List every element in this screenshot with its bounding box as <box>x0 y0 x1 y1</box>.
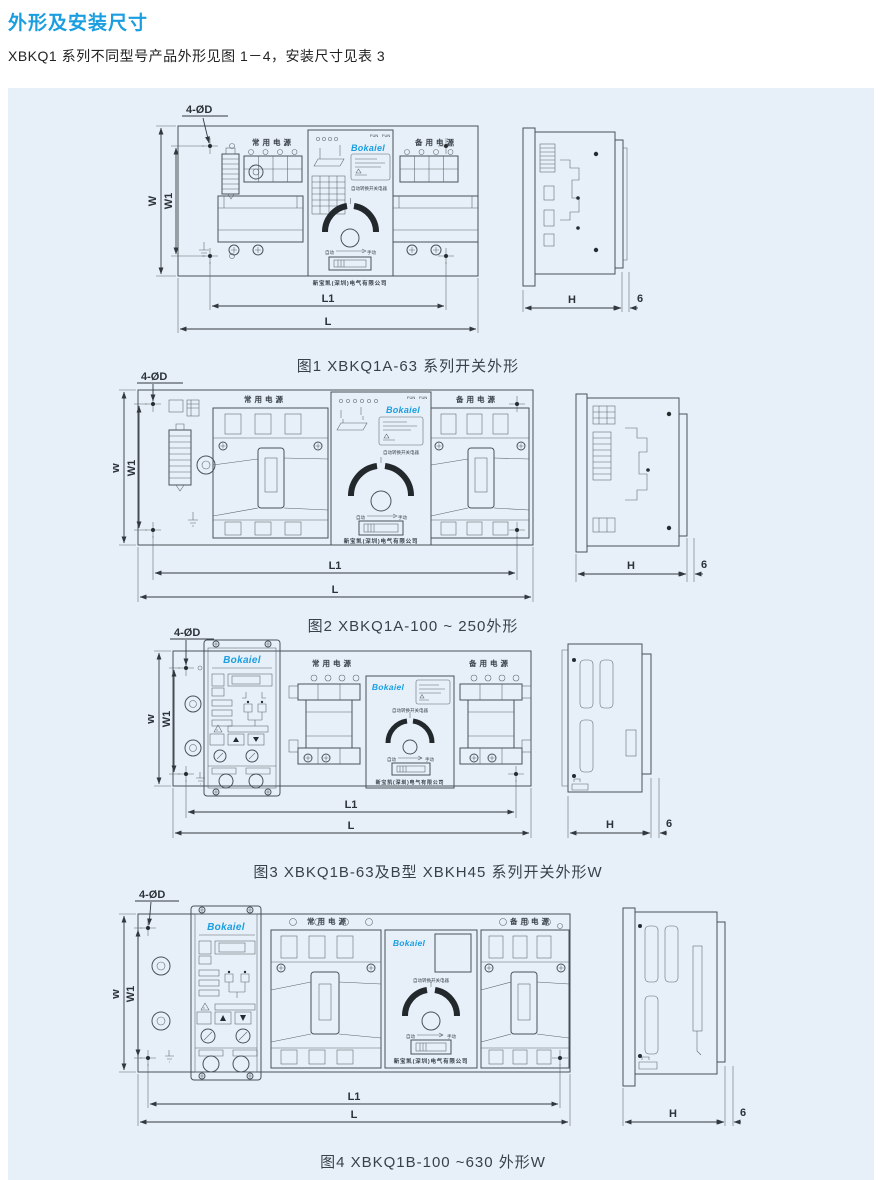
mounting-hole <box>140 920 156 936</box>
screw <box>247 907 253 913</box>
dim-h-label: H <box>568 294 576 306</box>
screw <box>199 907 205 913</box>
fig3-dimensions: W W1 L1 L <box>148 651 531 838</box>
fig4-dimensions: W W1 L1 L <box>113 914 570 1126</box>
terminal-screw <box>407 245 417 255</box>
dim-h-label: H <box>606 819 614 831</box>
left-contactor <box>289 684 360 764</box>
auto-label: 自动 <box>325 249 334 256</box>
ground-symbol <box>165 1050 174 1062</box>
company-label: 新宝凯(深圳)电气有限公司 <box>394 1057 469 1065</box>
fig2-dimensions: W W1 L1 L <box>113 390 533 602</box>
dim-h-label: H <box>669 1108 677 1120</box>
fig3-drawing: 常用电源 备用电源 <box>148 626 708 854</box>
auto-label: 自动 <box>356 514 365 521</box>
terminal-screw <box>219 442 227 450</box>
dim-w-label: W <box>148 713 157 724</box>
brand-logo: Bokaiel <box>372 682 405 692</box>
fig1-side-view: H 6 <box>523 128 643 312</box>
brand-logo: Bokaiel <box>386 405 420 415</box>
fig2-side-view: H 6 <box>576 394 707 582</box>
dim-l1-label: L1 <box>348 1091 361 1103</box>
dim-l-label: L <box>332 584 339 596</box>
terminal-screw <box>253 245 263 255</box>
mounting-hole <box>509 396 525 412</box>
manual-label: 手动 <box>367 249 376 256</box>
hole-dim-label: 4-ØD <box>186 104 212 116</box>
screw <box>265 789 271 795</box>
ground-symbol <box>188 512 198 526</box>
company-label: 新宝凯(深圳)电气有限公司 <box>313 279 388 287</box>
backup-power-label: 备用电源 <box>414 137 457 147</box>
figure-3-caption: 图3 XBKQ1B-63及B型 XBKH45 系列开关外形W <box>148 861 708 882</box>
mounting-hole <box>509 522 525 538</box>
normal-power-label: 常用电源 <box>252 137 294 147</box>
fig1-drawing: 常用电源 备用电源 FUN FUN Bokaiel <box>148 98 668 348</box>
terminal-screw <box>435 442 443 450</box>
fig1-dimensions: W W1 L1 L <box>148 126 478 333</box>
dim-l-label: L <box>351 1109 358 1121</box>
brand-logo: Bokaiel <box>393 938 426 948</box>
mounting-hole <box>438 248 454 264</box>
dim-w1-label: W1 <box>125 986 137 1003</box>
intro-text: XBKQ1 系列不同型号产品外形见图 1－4，安装尺寸见表 3 <box>8 46 385 66</box>
fig4-side-view: H 6 <box>623 908 746 1126</box>
dim-gap-label: 6 <box>637 293 643 305</box>
dim-w-label: W <box>113 988 122 999</box>
normal-power-label: 常用电源 <box>244 394 286 404</box>
fig2-control-panel: FUN FUN Bokaiel 自动转换开关电器 自动 手动 新宝凯(深圳)电气… <box>331 392 431 545</box>
manual-label: 手动 <box>398 514 407 521</box>
fig4-hole-callout: 4-ØD <box>135 889 179 925</box>
figure-3: 常用电源 备用电源 <box>148 626 708 882</box>
dim-w-label: W <box>148 195 159 206</box>
page-title: 外形及安装尺寸 <box>8 8 148 35</box>
warning-triangle <box>201 1003 209 1010</box>
fig4-front-view: 常用电源 备用电源 <box>138 914 570 1072</box>
fig4-drawing: 常用电源 备用电源 <box>113 886 753 1144</box>
manual-label: 手动 <box>447 1033 456 1040</box>
manual-label: 手动 <box>425 756 434 763</box>
auto-label: 自动 <box>387 756 396 763</box>
brand-logo: Bokaiel <box>223 655 261 666</box>
terminal-screw <box>322 754 330 762</box>
fig2-hole-callout: 4-ØD <box>137 371 183 401</box>
fig4-controller: Bokaiel <box>191 906 261 1080</box>
normal-power-label: 常用电源 <box>312 658 354 668</box>
screw <box>265 641 271 647</box>
fig3-hole-callout: 4-ØD <box>170 627 214 665</box>
fun-indicator-label: FUN <box>419 395 427 400</box>
company-label: 新宝凯(深圳)电气有限公司 <box>376 779 445 786</box>
dim-gap-label: 6 <box>740 1107 746 1119</box>
hole-dim-label: 4-ØD <box>174 627 200 639</box>
fig2-drawing: 常用电源 备用电源 <box>113 370 713 608</box>
mounting-hole <box>140 1050 156 1066</box>
dim-w1-label: W1 <box>126 460 138 477</box>
mounting-hole <box>202 138 218 154</box>
left-breaker <box>271 930 381 1068</box>
terminal-screw <box>314 442 322 450</box>
mode-slide-switch <box>392 763 430 775</box>
mode-slide-switch <box>329 257 371 270</box>
terminal-screw <box>488 754 496 762</box>
mounting-hole <box>145 522 161 538</box>
left-breaker <box>213 408 328 538</box>
fun-indicator-label: FUN <box>382 133 390 138</box>
figure-4: 常用电源 备用电源 <box>113 886 753 1172</box>
terminal-screw <box>229 245 239 255</box>
dim-gap-label: 6 <box>701 559 707 571</box>
dim-gap-label: 6 <box>666 818 672 830</box>
terminal-screw <box>304 754 312 762</box>
fig3-control-panel: Bokaiel 自动转换开关电器 自动 手动 新宝凯(深圳)电气有限公司 <box>366 676 454 788</box>
terminal-screw <box>517 442 525 450</box>
dim-w1-label: W1 <box>161 711 173 728</box>
company-label: 新宝凯(深圳)电气有限公司 <box>344 537 419 545</box>
right-breaker <box>431 408 529 538</box>
brand-logo: Bokaiel <box>351 143 385 153</box>
dim-h-label: H <box>627 560 635 572</box>
dim-l1-label: L1 <box>329 560 342 572</box>
dim-l-label: L <box>348 820 355 832</box>
right-contactor <box>460 684 531 764</box>
device-type-label: 自动转换开关电器 <box>351 185 387 192</box>
dial-knob <box>403 740 417 754</box>
dial-knob <box>422 1012 440 1030</box>
dial-knob <box>371 491 391 511</box>
backup-power-label: 备用电源 <box>509 916 552 926</box>
screw <box>199 1073 205 1079</box>
mounting-hole <box>508 766 524 782</box>
terminal-screw <box>277 964 285 972</box>
right-breaker <box>481 930 569 1068</box>
screw <box>247 1073 253 1079</box>
screw <box>213 641 219 647</box>
mounting-hole <box>178 766 194 782</box>
fig3-side-view: H 6 <box>562 644 672 838</box>
backup-power-label: 备用电源 <box>468 658 511 668</box>
brand-logo: Bokaiel <box>207 922 245 933</box>
terminal-screw <box>485 964 493 972</box>
dim-w1-label: W1 <box>163 193 175 210</box>
dim-l-label: L <box>325 316 332 328</box>
fun-indicator-label: FUN <box>370 133 378 138</box>
figure-4-caption: 图4 XBKQ1B-100 ~630 外形W <box>113 1151 753 1172</box>
fig2-front-view: 常用电源 备用电源 <box>138 390 533 545</box>
fig1-control-panel: FUN FUN Bokaiel 自动转换开关电器 自动 手动 新宝凯(深圳)电气… <box>308 130 393 287</box>
terminal-screw <box>557 964 565 972</box>
mode-slide-switch <box>359 521 403 535</box>
figures-panel: 常用电源 备用电源 FUN FUN Bokaiel <box>8 88 874 1180</box>
figure-2: 常用电源 备用电源 <box>113 370 713 636</box>
dim-l1-label: L1 <box>322 293 335 305</box>
backup-power-label: 备用电源 <box>455 394 498 404</box>
fig4-control-panel: Bokaiel 自动转换开关电器 自动 手动 新宝凯(深圳)电气有限公司 <box>385 930 477 1068</box>
dial-knob <box>341 229 359 247</box>
auto-label: 自动 <box>406 1033 415 1040</box>
dim-w-label: W <box>113 462 122 473</box>
dim-l1-label: L1 <box>345 799 358 811</box>
mode-slide-switch <box>411 1040 451 1054</box>
fig1-hole-callout: 4-ØD <box>182 104 228 143</box>
device-type-label: 自动转换开关电器 <box>383 449 419 456</box>
fun-indicator-label: FUN <box>407 395 415 400</box>
terminal-screw <box>367 964 375 972</box>
screw <box>213 789 219 795</box>
fig3-controller: Bokaiel <box>204 640 280 796</box>
mounting-hole <box>552 1050 568 1066</box>
device-type-label: 自动转换开关电器 <box>392 707 428 714</box>
ground-symbol <box>199 242 209 256</box>
hole-dim-label: 4-ØD <box>141 371 167 383</box>
terminal-screw <box>431 245 441 255</box>
figure-1: 常用电源 备用电源 FUN FUN Bokaiel <box>148 98 668 376</box>
hole-dim-label: 4-ØD <box>139 889 165 901</box>
terminal-screw <box>470 754 478 762</box>
